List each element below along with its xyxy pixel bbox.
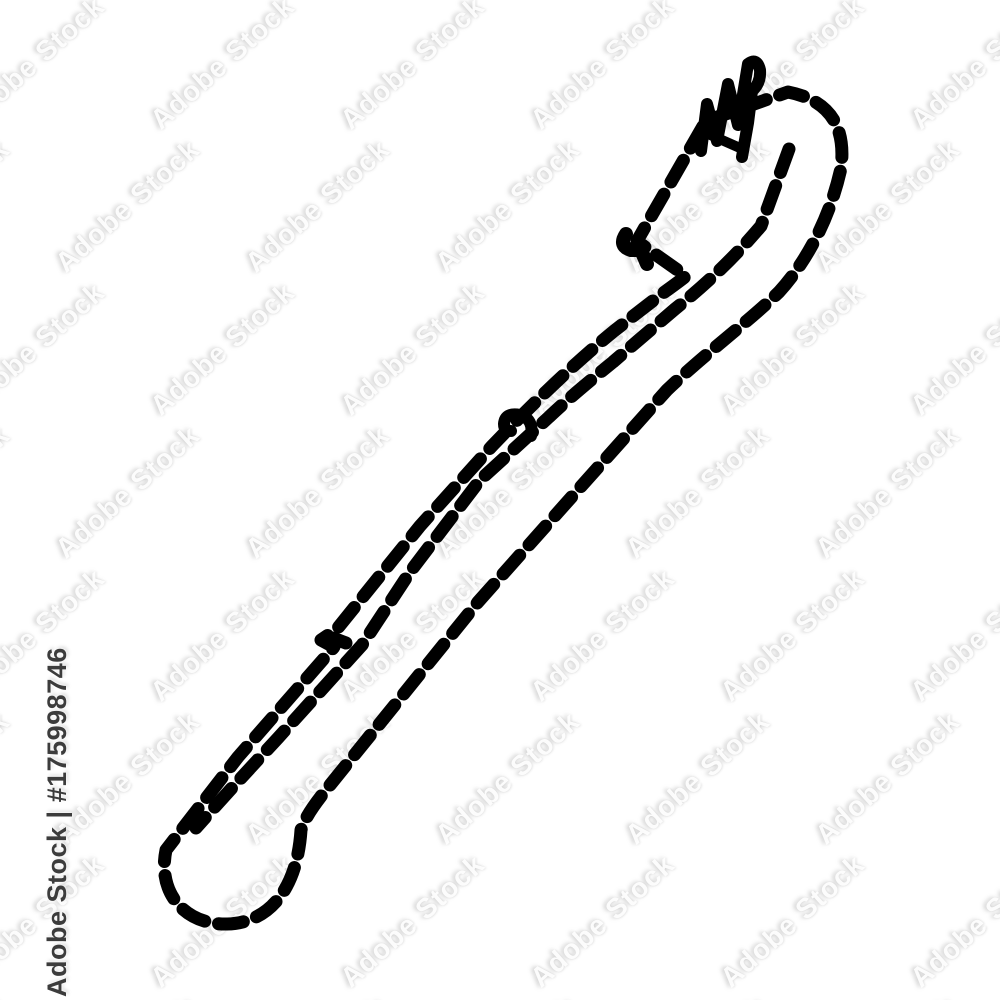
stock-image-canvas: Adobe StockAdobe StockAdobe StockAdobe S… — [0, 0, 1000, 1000]
toothbrush-illustration — [0, 0, 1000, 1000]
toothbrush-inner-line — [196, 149, 789, 828]
handle-kink-blob — [333, 638, 346, 643]
bristles-ink-pool — [706, 133, 740, 148]
stock-credit-label: Adobe Stock | #175998746 — [42, 647, 73, 997]
toothbrush-outline — [164, 92, 842, 924]
